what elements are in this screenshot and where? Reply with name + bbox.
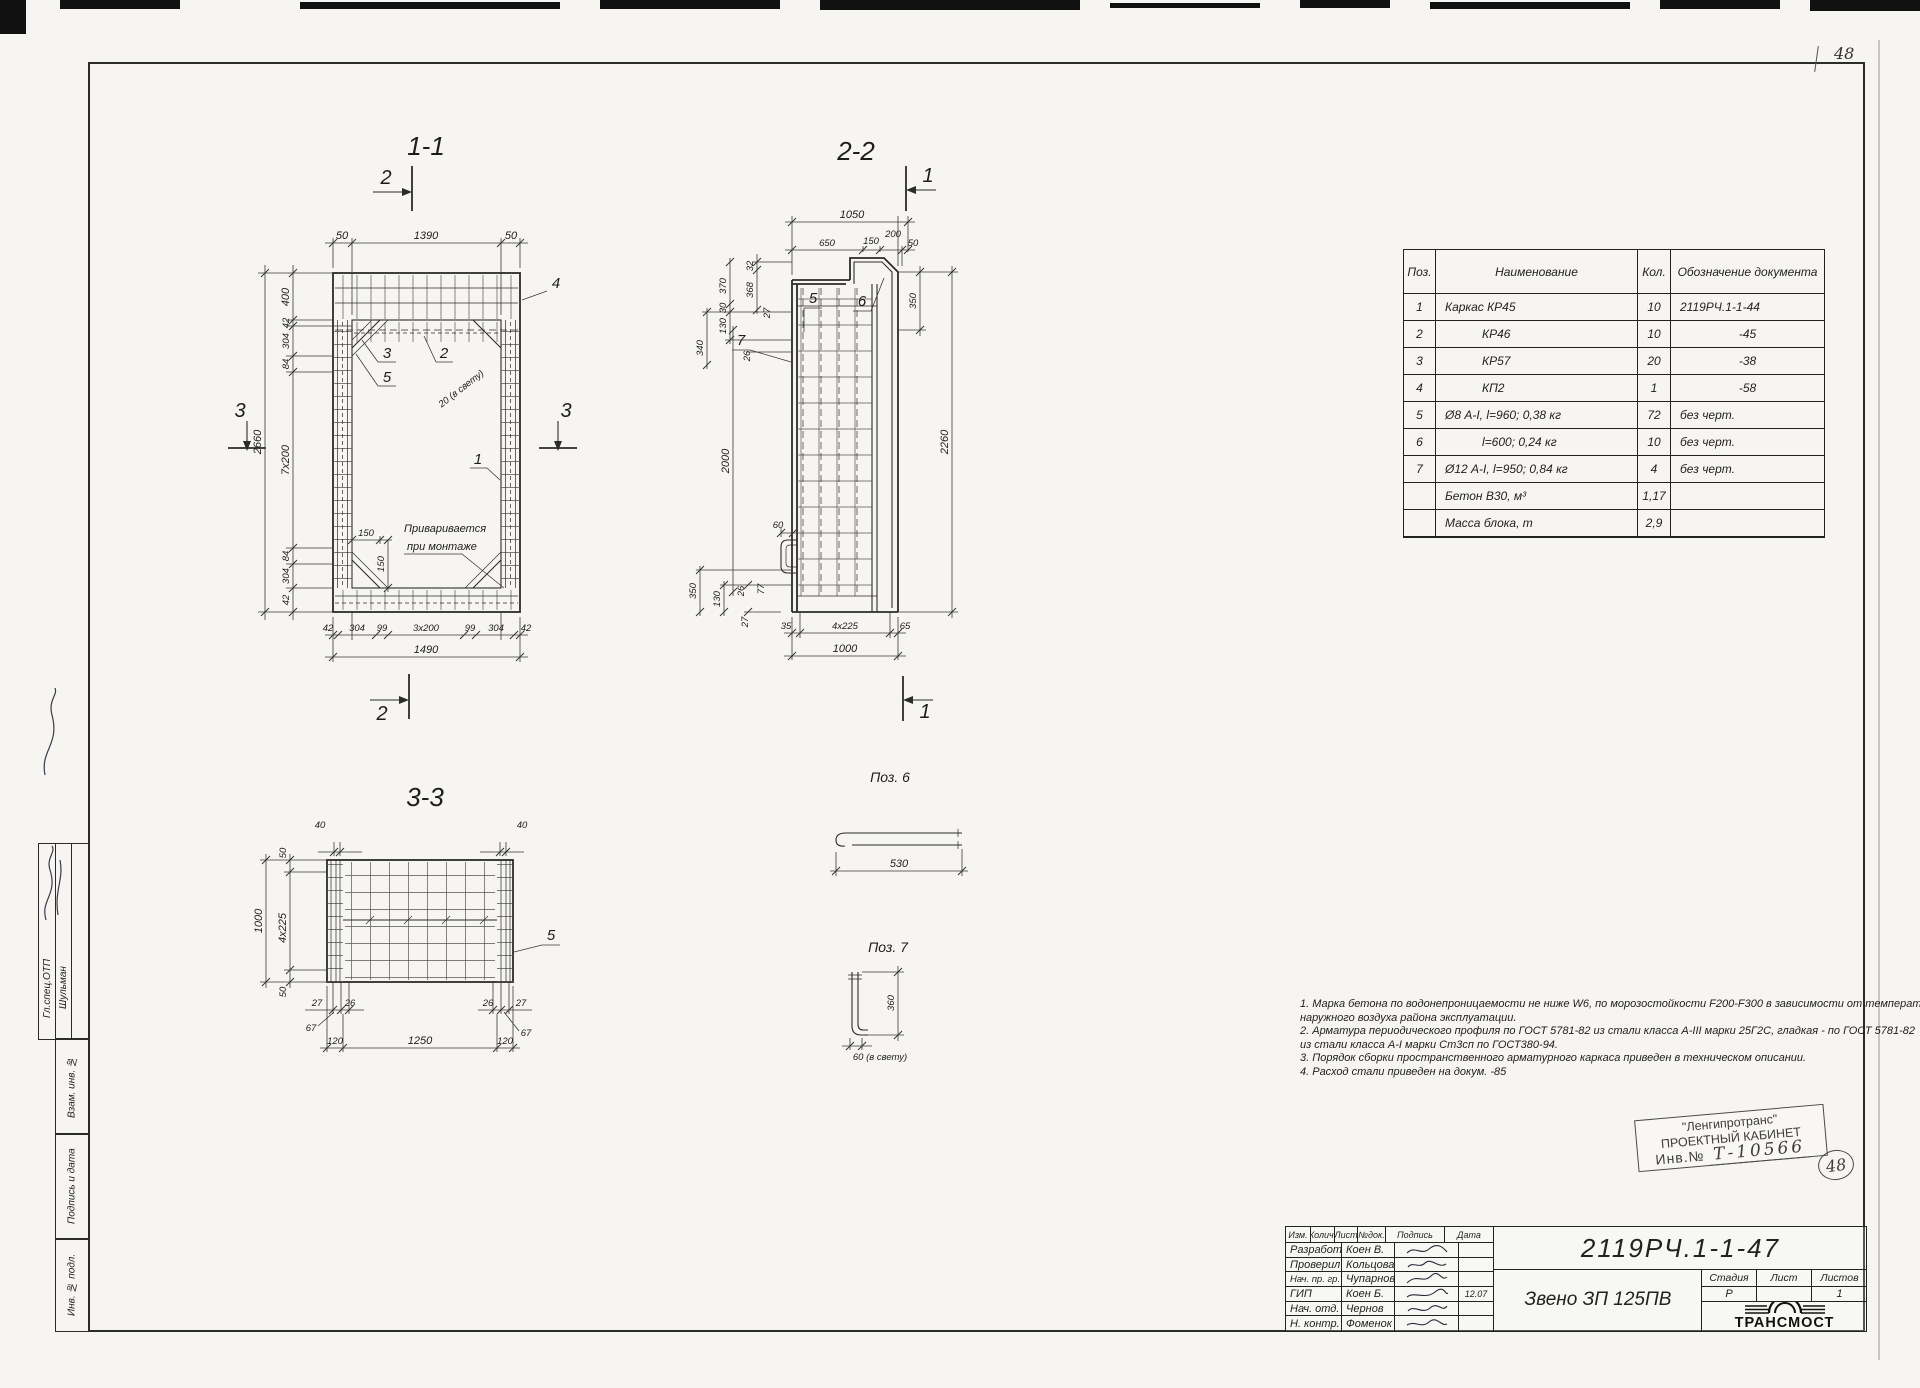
dim: 99 <box>377 623 388 634</box>
note-line: 2. Арматура периодического профиля по ГО… <box>1300 1025 1875 1039</box>
sheet-value <box>1757 1287 1812 1302</box>
sidebar-label-inv: Инв. № подл. <box>55 1238 89 1332</box>
spec-cell: Ø8 А-I, l=960; 0,38 кг <box>1436 402 1638 429</box>
tb-signature <box>1395 1316 1459 1331</box>
dim: 60 (в свету) <box>853 1052 907 1063</box>
dim: 50 <box>278 986 289 997</box>
dim: 50 <box>908 238 919 249</box>
title-block-personnel: Изм. Колич. Лист №док. Подпись Дата Разр… <box>1286 1227 1493 1328</box>
tb-signature <box>1395 1272 1459 1287</box>
spec-header-name: Наименование <box>1436 250 1638 294</box>
spec-cell <box>1404 510 1436 537</box>
tb-date <box>1459 1316 1493 1331</box>
spec-header-qty: Кол. <box>1638 250 1671 294</box>
section-2-2: 2-2 1 1 1050 <box>688 136 958 723</box>
spec-cell: 20 <box>1638 348 1671 375</box>
dim: 530 <box>890 858 909 870</box>
dim: 4x225 <box>832 621 859 632</box>
dim: 27 <box>311 998 323 1009</box>
spec-cell: 5 <box>1404 402 1436 429</box>
clear-distance-note: 20 (в свету) <box>436 368 486 411</box>
logo-cell: ТРАНСМОСТ <box>1701 1302 1867 1331</box>
tb-header-list: Лист <box>1335 1227 1358 1243</box>
dim: 120 <box>497 1036 514 1047</box>
sidebar-approver-name: Шульман <box>57 939 70 1037</box>
sidebar-approver-table: Гл.спец.ОТП Шульман <box>38 843 89 1040</box>
tb-date <box>1459 1243 1493 1258</box>
spec-cell: 10 <box>1638 294 1671 321</box>
section-1-1-title: 1-1 <box>407 131 445 161</box>
dim: 304 <box>281 333 292 349</box>
spec-cell: без черт. <box>1671 456 1824 483</box>
note-line: наружного воздуха района эксплуатации. <box>1300 1012 1875 1026</box>
spec-cell: Масса блока, т <box>1436 510 1638 537</box>
spec-cell: без черт. <box>1671 402 1824 429</box>
dim: 27 <box>515 998 527 1009</box>
doc-number-cell: 2119РЧ.1-1-47 <box>1493 1227 1867 1270</box>
dim: 1000 <box>833 643 858 655</box>
drawing-sheet: 48 1-1 2 2 3 3 <box>0 0 1920 1388</box>
dim: 120 <box>327 1036 344 1047</box>
tb-role: Разработал <box>1286 1243 1342 1258</box>
dim: 30 <box>718 302 729 313</box>
detail-pos7: Поз. 7 360 60 (в свету) <box>842 939 909 1063</box>
dim: 130 <box>718 317 729 334</box>
dim: 650 <box>819 238 836 249</box>
spec-cell: 1 <box>1638 375 1671 402</box>
dim: 2660 <box>252 429 264 455</box>
dim: 3x200 <box>413 623 440 634</box>
dim: 50 <box>336 230 349 242</box>
spec-cell: -45 <box>1671 321 1824 348</box>
dim: 40 <box>517 820 528 831</box>
stage-value: Р <box>1702 1287 1757 1302</box>
spec-cell: 7 <box>1404 456 1436 483</box>
weld-note-line2: при монтаже <box>407 541 477 553</box>
spec-header-pos: Поз. <box>1404 250 1436 294</box>
doc-name: Звено ЗП 125ПВ <box>1525 1289 1672 1311</box>
spec-cell: -38 <box>1671 348 1824 375</box>
stamp-sheet-number: 48 <box>1825 1154 1848 1176</box>
tb-signature <box>1395 1243 1459 1258</box>
cut-marker-1-top: 1 <box>922 165 933 187</box>
cut-marker-3-right: 3 <box>560 400 571 422</box>
tb-name: Коен Б. <box>1342 1287 1395 1302</box>
sheet-label: Лист <box>1757 1269 1812 1287</box>
dim: 26 <box>344 998 356 1009</box>
sidebar-label-vzam: Взам. инв. № <box>55 1038 89 1135</box>
dim: 150 <box>863 236 880 247</box>
callout-3: 3 <box>383 345 392 362</box>
section-2-2-title: 2-2 <box>836 136 875 166</box>
dim: 60 <box>773 520 784 531</box>
note-line: 3. Порядок сборки пространственного арма… <box>1300 1052 1875 1066</box>
dim: 1390 <box>414 230 439 242</box>
dim: 304 <box>488 623 504 634</box>
doc-name-cell: Звено ЗП 125ПВ <box>1493 1269 1702 1331</box>
spec-cell: 2 <box>1404 321 1436 348</box>
spec-cell: 1 <box>1404 294 1436 321</box>
tb-signature <box>1395 1287 1459 1302</box>
note-line: из стали класса А-I марки Ст3сп по ГОСТ3… <box>1300 1039 1875 1053</box>
tb-role: Нач. пр. гр. <box>1286 1272 1342 1287</box>
dim: 2260 <box>939 429 951 455</box>
section-3-3: 3-3 40 40 50 1000 4x225 50 <box>253 782 560 1052</box>
spec-cell: Ø12 А-I, l=950; 0,84 кг <box>1436 456 1638 483</box>
dim: 368 <box>745 281 756 298</box>
tb-header-data: Дата <box>1445 1227 1493 1243</box>
detail-pos6-label: Поз. 6 <box>870 769 910 785</box>
stage-header-row: Стадия Лист Листов <box>1701 1269 1867 1287</box>
spec-cell: 10 <box>1638 429 1671 456</box>
dim: 67 <box>521 1028 532 1039</box>
tb-date <box>1459 1302 1493 1317</box>
tb-date <box>1459 1258 1493 1273</box>
tb-name: Фоменок <box>1342 1316 1395 1331</box>
tb-name: Чернов <box>1342 1302 1395 1317</box>
dim: 84 <box>281 359 292 370</box>
dim: 42 <box>281 317 292 328</box>
spec-cell: l=600; 0,24 кг <box>1436 429 1638 456</box>
weld-note-line1: Приваривается <box>404 523 486 535</box>
dim: 67 <box>306 1023 317 1034</box>
dim: 99 <box>465 623 476 634</box>
callout-4: 4 <box>552 275 560 292</box>
spec-cell: 4 <box>1638 456 1671 483</box>
dim: 1250 <box>408 1035 433 1047</box>
stage-value-row: Р 1 <box>1701 1287 1867 1302</box>
note-line: 4. Расход стали приведен на докум. -85 <box>1300 1066 1875 1080</box>
dim: 370 <box>718 277 729 294</box>
transmost-bridge-icon <box>1743 1302 1827 1315</box>
callout-5: 5 <box>547 927 556 944</box>
spec-cell: 1,17 <box>1638 483 1671 510</box>
callout-1: 1 <box>474 451 482 468</box>
callout-5: 5 <box>383 369 392 386</box>
dim: 150 <box>376 555 387 572</box>
cut-marker-2-bottom: 2 <box>375 703 387 725</box>
tb-date <box>1459 1272 1493 1287</box>
tb-role: Проверил <box>1286 1258 1342 1273</box>
dim: 26 <box>742 350 753 362</box>
dim: 35 <box>781 621 792 632</box>
tb-signature <box>1395 1302 1459 1317</box>
dim: 360 <box>886 994 897 1011</box>
cut-marker-1-bottom: 1 <box>919 701 930 723</box>
spec-cell <box>1671 483 1824 510</box>
tb-role: Н. контр. <box>1286 1316 1342 1331</box>
dim: 350 <box>688 582 699 599</box>
dim: 32 <box>745 260 756 271</box>
tb-header-izm: Изм. <box>1286 1227 1311 1243</box>
section-3-3-title: 3-3 <box>406 782 444 812</box>
dim: 1050 <box>840 209 865 221</box>
section-1-1: 1-1 2 2 3 3 <box>228 131 577 725</box>
spec-cell: КР57 <box>1436 348 1638 375</box>
cut-marker-3-left: 3 <box>234 400 245 422</box>
spec-cell: 2119РЧ.1-1-44 <box>1671 294 1824 321</box>
spec-cell: 2,9 <box>1638 510 1671 537</box>
callout-5: 5 <box>809 290 818 307</box>
tb-header-kolich: Колич. <box>1311 1227 1335 1243</box>
dim: 4x225 <box>277 912 289 943</box>
dim: 400 <box>280 287 292 306</box>
spec-cell: Бетон В30, м³ <box>1436 483 1638 510</box>
spec-cell <box>1671 510 1824 537</box>
dim: 42 <box>323 623 334 634</box>
dim: 26 <box>482 998 494 1009</box>
sidebar-approver-role: Гл.спец.ОТП <box>41 939 54 1037</box>
dim: 42 <box>521 623 532 634</box>
dim: 1000 <box>253 908 265 933</box>
spec-cell: КР46 <box>1436 321 1638 348</box>
tb-role: Нач. отд. <box>1286 1302 1342 1317</box>
title-block: Изм. Колич. Лист №док. Подпись Дата Разр… <box>1285 1226 1867 1332</box>
spec-cell: 4 <box>1404 375 1436 402</box>
spec-cell <box>1404 483 1436 510</box>
drawing-canvas: 1-1 2 2 3 3 <box>0 0 1920 1388</box>
dim: 65 <box>900 621 911 632</box>
stage-label: Стадия <box>1702 1269 1757 1287</box>
tb-name: Коен В. <box>1342 1243 1395 1258</box>
callout-7: 7 <box>737 332 746 349</box>
dim: 50 <box>505 230 518 242</box>
sheets-value: 1 <box>1812 1287 1867 1302</box>
spec-cell: -58 <box>1671 375 1824 402</box>
dim: 27 <box>740 616 751 628</box>
dim: 150 <box>358 528 375 539</box>
dim: 26 <box>736 585 747 597</box>
dim: 84 <box>281 551 292 562</box>
tb-header-ndok: №док. <box>1358 1227 1386 1243</box>
dim: 7x200 <box>280 444 292 475</box>
dim: 77 <box>756 583 767 594</box>
spec-cell: 3 <box>1404 348 1436 375</box>
sidebar-label-podpis: Подпись и дата <box>55 1133 89 1240</box>
dim: 50 <box>278 847 289 858</box>
tb-date: 12.07 <box>1459 1287 1493 1302</box>
dim: 130 <box>712 590 723 607</box>
cut-marker-2-top: 2 <box>379 167 391 189</box>
dim: 1490 <box>414 644 439 656</box>
dim: 27 <box>762 307 773 319</box>
spec-header-doc: Обозначение документа <box>1671 250 1824 294</box>
detail-pos6: Поз. 6 530 <box>830 769 968 876</box>
dim: 42 <box>281 594 292 605</box>
spec-cell: 6 <box>1404 429 1436 456</box>
general-notes: 1. Марка бетона по водонепроницаемости н… <box>1300 998 1875 1080</box>
spec-cell: 72 <box>1638 402 1671 429</box>
tb-name: Кольцова <box>1342 1258 1395 1273</box>
dim: 304 <box>349 623 365 634</box>
dim: 200 <box>884 229 902 240</box>
spec-cell: 10 <box>1638 321 1671 348</box>
dim: 340 <box>695 339 706 356</box>
spec-cell: без черт. <box>1671 429 1824 456</box>
tb-signature <box>1395 1258 1459 1273</box>
sheets-label: Листов <box>1812 1269 1867 1287</box>
dim: 304 <box>281 568 292 584</box>
transmost-logo-text: ТРАНСМОСТ <box>1735 1315 1835 1331</box>
spec-cell: Каркас КР45 <box>1436 294 1638 321</box>
stamp-inv-label: Инв.№ <box>1655 1147 1705 1167</box>
spec-table: Поз. Наименование Кол. Обозначение докум… <box>1403 249 1825 538</box>
doc-number: 2119РЧ.1-1-47 <box>1581 1233 1780 1264</box>
callout-2: 2 <box>439 345 449 362</box>
spec-cell: КП2 <box>1436 375 1638 402</box>
tb-name: Чупарнова <box>1342 1272 1395 1287</box>
dim: 40 <box>315 820 326 831</box>
tb-header-podpis: Подпись <box>1386 1227 1445 1243</box>
note-line: 1. Марка бетона по водонепроницаемости н… <box>1300 998 1875 1012</box>
tb-role: ГИП <box>1286 1287 1342 1302</box>
callout-6: 6 <box>858 293 867 310</box>
dim: 350 <box>908 292 919 309</box>
dim: 2000 <box>720 448 732 474</box>
detail-pos7-label: Поз. 7 <box>868 939 909 955</box>
